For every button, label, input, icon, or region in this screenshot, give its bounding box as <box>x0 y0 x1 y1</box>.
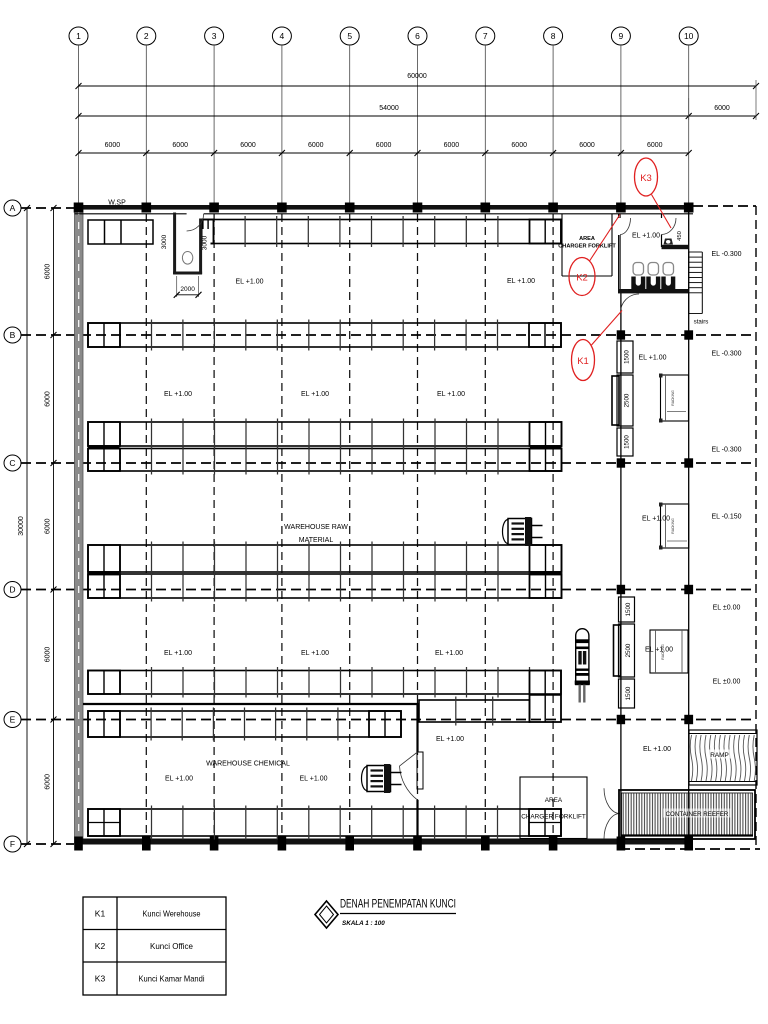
svg-text:EL ±0.00: EL ±0.00 <box>713 605 741 612</box>
svg-text:2500: 2500 <box>624 393 631 407</box>
svg-text:EL +1.00: EL +1.00 <box>507 278 535 285</box>
svg-text:6000: 6000 <box>45 518 52 534</box>
svg-text:6000: 6000 <box>172 142 188 149</box>
svg-text:RAMP: RAMP <box>710 752 728 759</box>
svg-text:EL +1.00: EL +1.00 <box>645 647 673 654</box>
svg-text:7: 7 <box>483 31 488 41</box>
svg-text:5: 5 <box>347 31 352 41</box>
svg-text:6000: 6000 <box>45 774 52 790</box>
svg-text:EL +1.00: EL +1.00 <box>301 650 329 657</box>
svg-text:SKALA 1 : 100: SKALA 1 : 100 <box>342 920 385 927</box>
svg-text:54000: 54000 <box>379 105 399 112</box>
svg-text:EL +1.00: EL +1.00 <box>164 650 192 657</box>
svg-text:DENAH PENEMPATAN KUNCI: DENAH PENEMPATAN KUNCI <box>340 897 456 911</box>
svg-text:1500: 1500 <box>625 686 632 700</box>
svg-text:AREA: AREA <box>579 236 595 242</box>
svg-text:K3: K3 <box>95 974 106 984</box>
svg-text:6000: 6000 <box>444 142 460 149</box>
svg-text:1500: 1500 <box>624 350 631 364</box>
svg-text:3: 3 <box>212 31 217 41</box>
svg-text:2000: 2000 <box>180 286 195 293</box>
svg-text:6: 6 <box>415 31 420 41</box>
svg-text:K3: K3 <box>640 173 652 184</box>
svg-text:D: D <box>9 585 15 595</box>
svg-text:EL +1.00: EL +1.00 <box>642 516 670 523</box>
svg-text:EL +1.00: EL +1.00 <box>435 650 463 657</box>
svg-text:EL +1.00: EL +1.00 <box>436 736 464 743</box>
svg-text:6000: 6000 <box>45 264 52 280</box>
svg-text:6000: 6000 <box>714 105 730 112</box>
svg-text:E: E <box>10 715 16 725</box>
svg-text:MATERIAL: MATERIAL <box>299 537 334 544</box>
svg-text:stairs: stairs <box>694 319 709 326</box>
svg-text:8: 8 <box>551 31 556 41</box>
svg-text:9: 9 <box>619 31 624 41</box>
svg-text:A: A <box>10 203 16 213</box>
svg-text:Kunci Office: Kunci Office <box>150 941 193 951</box>
svg-text:10: 10 <box>684 31 694 41</box>
svg-text:EL +1.00: EL +1.00 <box>164 391 192 398</box>
svg-text:AREA: AREA <box>545 797 563 804</box>
svg-text:4: 4 <box>280 31 285 41</box>
svg-text:EL +1.00: EL +1.00 <box>632 233 660 240</box>
svg-text:1: 1 <box>76 31 81 41</box>
svg-text:W.SP: W.SP <box>108 200 126 207</box>
svg-text:EL -0.300: EL -0.300 <box>711 447 741 454</box>
svg-text:F: F <box>10 839 15 849</box>
svg-text:6000: 6000 <box>511 142 527 149</box>
svg-text:K1: K1 <box>577 356 589 367</box>
svg-text:EL +1.00: EL +1.00 <box>236 279 264 286</box>
svg-text:K1: K1 <box>95 909 106 919</box>
svg-text:EL -0.150: EL -0.150 <box>711 514 741 521</box>
svg-text:450: 450 <box>677 231 683 241</box>
svg-text:6000: 6000 <box>45 391 52 407</box>
svg-text:2500: 2500 <box>625 643 632 657</box>
svg-text:EL +1.00: EL +1.00 <box>643 746 671 753</box>
svg-text:RACKING: RACKING <box>671 518 675 534</box>
svg-text:6000: 6000 <box>376 142 392 149</box>
svg-text:3000: 3000 <box>161 234 168 249</box>
svg-text:K2: K2 <box>576 273 588 284</box>
svg-text:Kunci Werehouse: Kunci Werehouse <box>143 909 201 919</box>
svg-text:6000: 6000 <box>579 142 595 149</box>
svg-text:EL +1.00: EL +1.00 <box>301 391 329 398</box>
svg-text:60000: 60000 <box>407 73 427 80</box>
svg-text:3000: 3000 <box>202 235 209 250</box>
svg-text:2: 2 <box>144 31 149 41</box>
svg-text:EL -0.300: EL -0.300 <box>711 251 741 258</box>
svg-text:RACKING: RACKING <box>671 390 675 406</box>
svg-text:1500: 1500 <box>625 602 632 616</box>
svg-text:Kunci Kamar Mandi: Kunci Kamar Mandi <box>139 974 205 984</box>
svg-text:B: B <box>10 330 16 340</box>
svg-text:EL -0.300: EL -0.300 <box>711 351 741 358</box>
svg-text:6000: 6000 <box>240 142 256 149</box>
svg-text:6000: 6000 <box>105 142 121 149</box>
svg-text:EL +1.00: EL +1.00 <box>165 776 193 783</box>
svg-text:CHARGER FORKLIFT: CHARGER FORKLIFT <box>521 814 586 821</box>
svg-text:6000: 6000 <box>45 647 52 663</box>
svg-text:CHARGER FORKLIFT: CHARGER FORKLIFT <box>558 244 616 250</box>
svg-text:1500: 1500 <box>624 435 631 449</box>
svg-text:EL +1.00: EL +1.00 <box>437 391 465 398</box>
svg-text:EL +1.00: EL +1.00 <box>639 355 667 362</box>
svg-text:K2: K2 <box>95 941 106 951</box>
svg-text:30000: 30000 <box>18 516 25 536</box>
svg-text:6000: 6000 <box>647 142 663 149</box>
svg-text:WAREHOUSE CHEMICAL: WAREHOUSE CHEMICAL <box>206 761 290 768</box>
svg-text:EL ±0.00: EL ±0.00 <box>713 679 741 686</box>
svg-text:CONTAINER REEFER: CONTAINER REEFER <box>666 811 729 818</box>
svg-text:6000: 6000 <box>308 142 324 149</box>
svg-text:C: C <box>9 458 15 468</box>
svg-text:EL +1.00: EL +1.00 <box>300 776 328 783</box>
svg-text:WAREHOUSE RAW: WAREHOUSE RAW <box>284 524 348 531</box>
